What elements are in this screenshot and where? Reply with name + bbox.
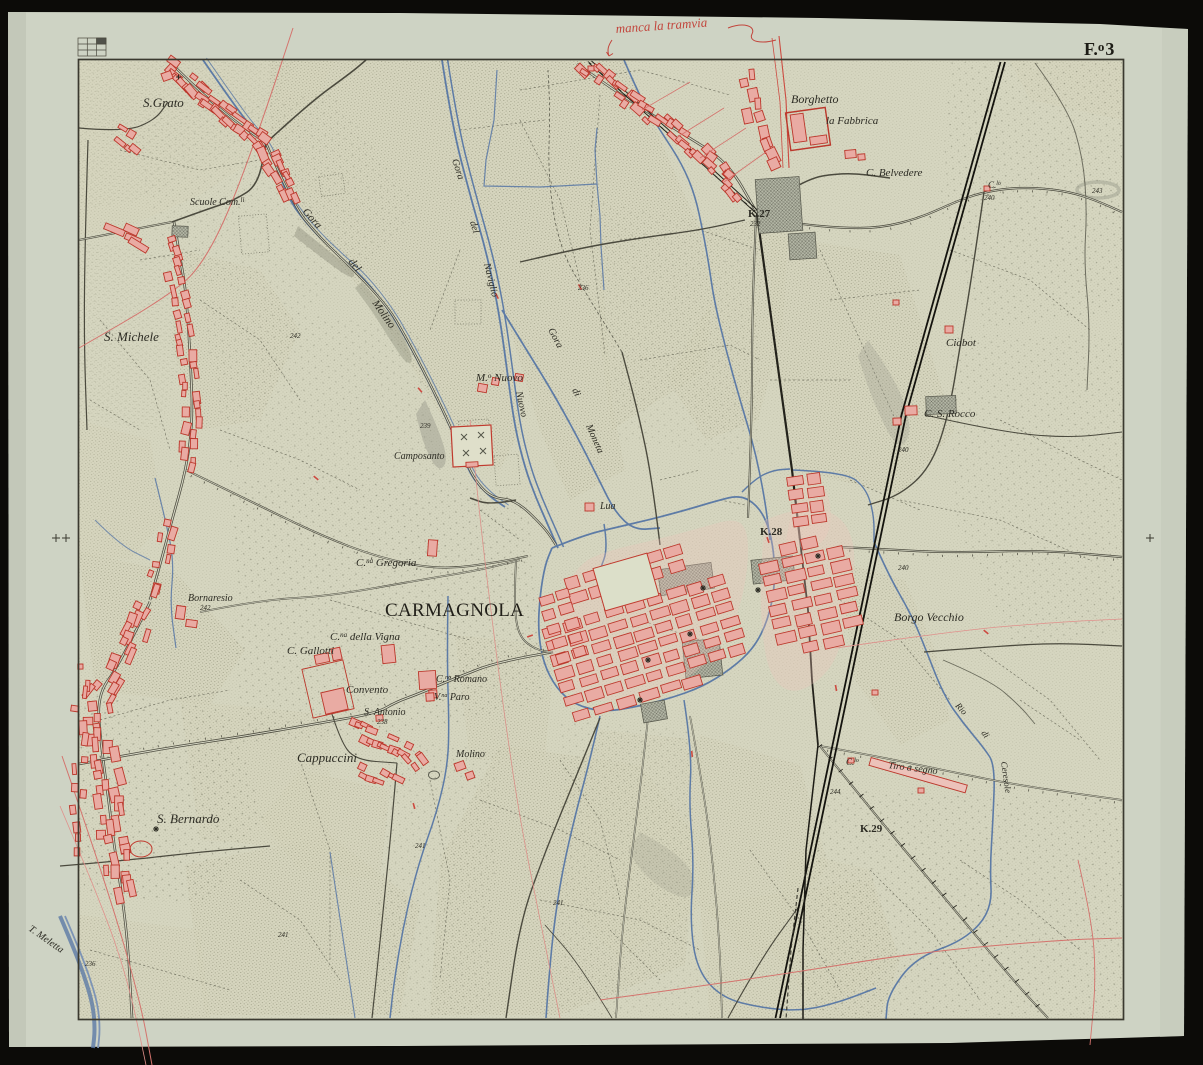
svg-text:243: 243	[1092, 187, 1103, 195]
svg-text:Lua: Lua	[599, 501, 616, 512]
svg-text:240: 240	[898, 446, 909, 454]
svg-text:Camposanto: Camposanto	[394, 451, 445, 462]
svg-text:241: 241	[553, 899, 564, 907]
svg-text:242: 242	[200, 604, 211, 612]
svg-text:C.no Romano: C.no Romano	[436, 674, 487, 685]
svg-text:244: 244	[830, 788, 841, 796]
svg-text:CARMAGNOLA: CARMAGNOLA	[385, 600, 524, 621]
svg-text:la Fabbrica: la Fabbrica	[826, 115, 879, 127]
svg-text:241: 241	[415, 842, 426, 850]
svg-text:S. Bernardo: S. Bernardo	[157, 811, 220, 826]
svg-text:238: 238	[377, 718, 388, 726]
svg-text:240: 240	[898, 564, 909, 572]
svg-text:S.Grato: S.Grato	[143, 95, 184, 110]
svg-text:S. Antonio: S. Antonio	[364, 707, 405, 718]
svg-text:K.29: K.29	[860, 823, 883, 835]
svg-text:M.o Nuovo: M.o Nuovo	[475, 372, 523, 384]
svg-text:240: 240	[984, 194, 995, 202]
svg-text:Borgo Vecchio: Borgo Vecchio	[894, 610, 964, 624]
svg-text:242: 242	[290, 332, 301, 340]
svg-text:C. Belvedere: C. Belvedere	[866, 167, 923, 179]
svg-text:239: 239	[420, 422, 431, 430]
svg-text:236: 236	[85, 960, 96, 968]
svg-text:Bornaresio: Bornaresio	[188, 593, 233, 604]
svg-text:C. S. Rocco: C. S. Rocco	[924, 408, 976, 420]
svg-text:232: 232	[750, 220, 761, 228]
svg-text:C.na Gregoria: C.na Gregoria	[356, 557, 417, 569]
svg-text:241: 241	[278, 931, 289, 939]
svg-text:Borghetto: Borghetto	[791, 92, 839, 106]
svg-text:Cappuccini: Cappuccini	[297, 750, 357, 765]
svg-text:Molino: Molino	[455, 749, 485, 760]
svg-text:K.28: K.28	[760, 526, 783, 538]
svg-text:Ciabot: Ciabot	[946, 337, 977, 349]
svg-text:S. Michele: S. Michele	[104, 329, 159, 344]
svg-text:Scuole Com.li: Scuole Com.li	[190, 196, 244, 208]
svg-text:C. Gallotti: C. Gallotti	[287, 645, 334, 657]
svg-text:Convento: Convento	[346, 684, 389, 696]
svg-text:K.27: K.27	[748, 208, 771, 220]
svg-text:236: 236	[578, 284, 589, 292]
svg-text:V.na Paro: V.na Paro	[434, 692, 469, 703]
